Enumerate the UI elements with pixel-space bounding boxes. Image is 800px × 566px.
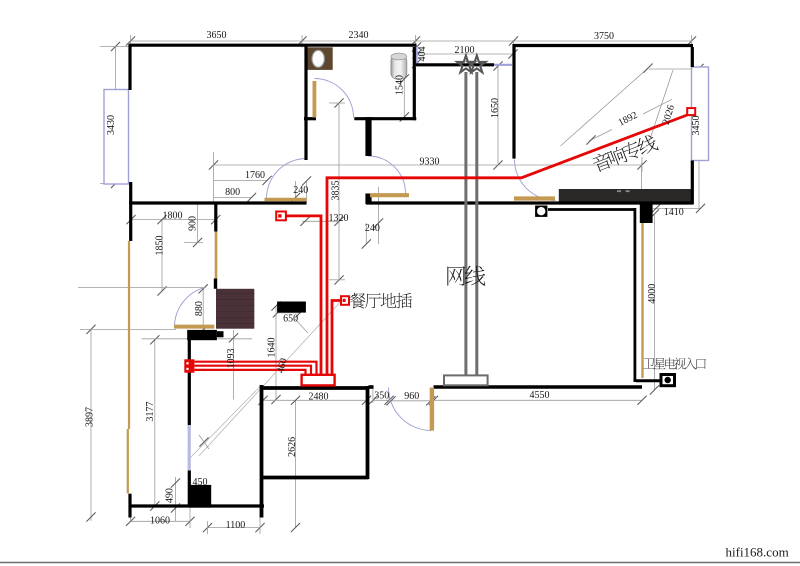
svg-text:450: 450 xyxy=(193,477,208,488)
svg-text:4000: 4000 xyxy=(647,284,658,304)
svg-text:2626: 2626 xyxy=(287,437,298,457)
svg-text:3430: 3430 xyxy=(106,115,117,135)
svg-text:1320: 1320 xyxy=(329,213,349,224)
svg-text:404: 404 xyxy=(417,47,428,62)
svg-text:1650: 1650 xyxy=(490,98,501,118)
svg-text:3650: 3650 xyxy=(207,30,227,41)
svg-text:3897: 3897 xyxy=(84,407,95,427)
svg-text:1093: 1093 xyxy=(226,349,237,369)
svg-text:960: 960 xyxy=(404,391,419,402)
svg-text:3835: 3835 xyxy=(331,181,342,201)
svg-text:9330: 9330 xyxy=(420,156,440,167)
svg-text:490: 490 xyxy=(164,488,175,503)
svg-text:1800: 1800 xyxy=(163,210,183,221)
svg-text:350: 350 xyxy=(374,391,389,402)
svg-text:650: 650 xyxy=(283,314,298,325)
svg-text:1640: 1640 xyxy=(267,338,278,358)
svg-text:3177: 3177 xyxy=(145,402,156,422)
svg-text:240: 240 xyxy=(365,223,380,234)
svg-text:1540: 1540 xyxy=(394,75,405,95)
svg-text:800: 800 xyxy=(225,187,240,198)
svg-text:2340: 2340 xyxy=(349,30,369,41)
svg-text:2100: 2100 xyxy=(455,45,475,56)
svg-text:hifi168.com: hifi168.com xyxy=(726,545,789,560)
svg-text:880: 880 xyxy=(194,301,205,316)
svg-text:900: 900 xyxy=(187,216,198,231)
svg-text:1100: 1100 xyxy=(226,520,246,531)
svg-text:4550: 4550 xyxy=(530,390,550,401)
svg-text:1410: 1410 xyxy=(664,207,684,218)
svg-text:1760: 1760 xyxy=(245,170,265,181)
svg-text:240: 240 xyxy=(293,185,308,196)
svg-text:2480: 2480 xyxy=(309,391,329,402)
svg-text:1850: 1850 xyxy=(154,236,165,256)
svg-text:3750: 3750 xyxy=(594,31,614,42)
svg-text:1060: 1060 xyxy=(150,516,170,527)
svg-text:3450: 3450 xyxy=(691,116,702,136)
